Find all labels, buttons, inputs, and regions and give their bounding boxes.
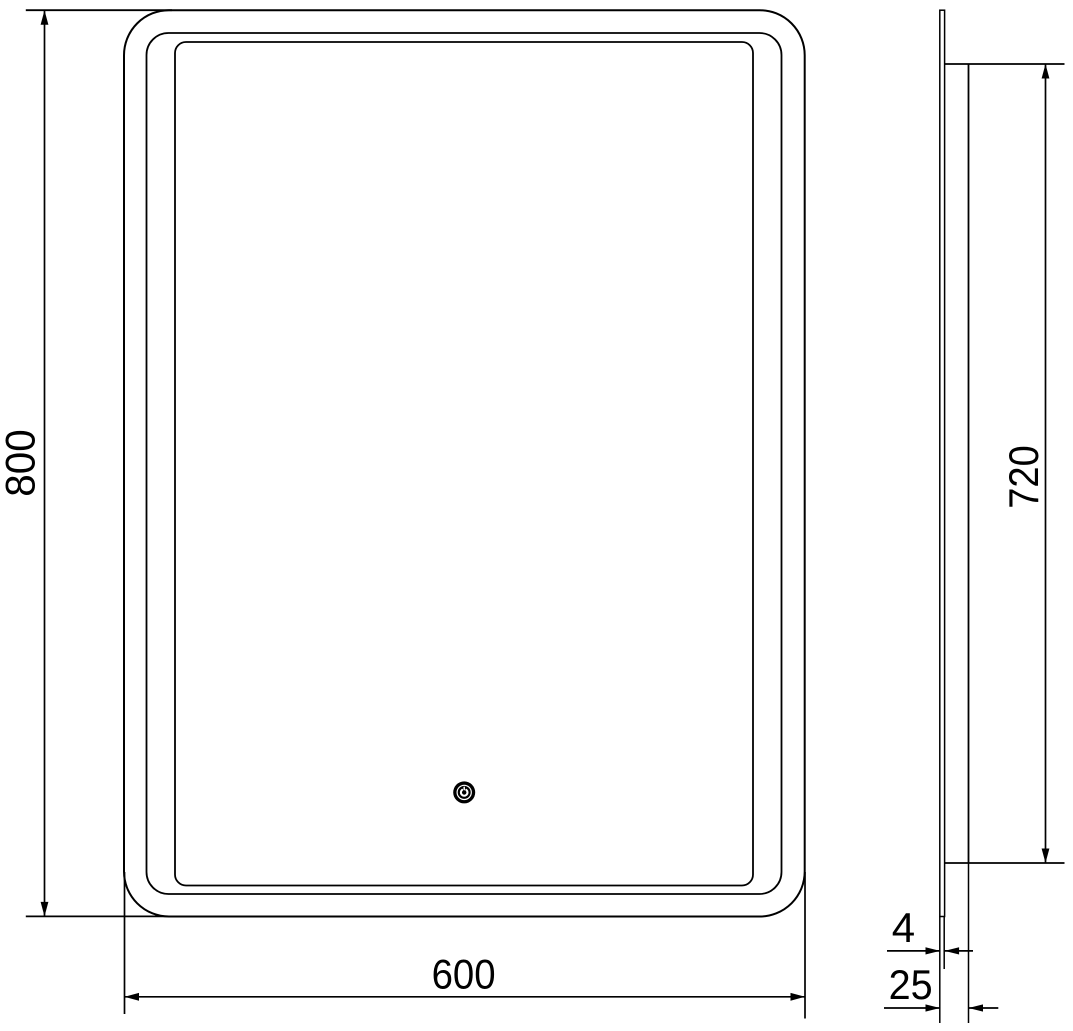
svg-text:4: 4 xyxy=(892,904,915,951)
svg-text:720: 720 xyxy=(1000,445,1047,509)
svg-text:600: 600 xyxy=(432,950,496,997)
svg-text:800: 800 xyxy=(0,429,44,497)
svg-text:25: 25 xyxy=(889,961,933,1008)
